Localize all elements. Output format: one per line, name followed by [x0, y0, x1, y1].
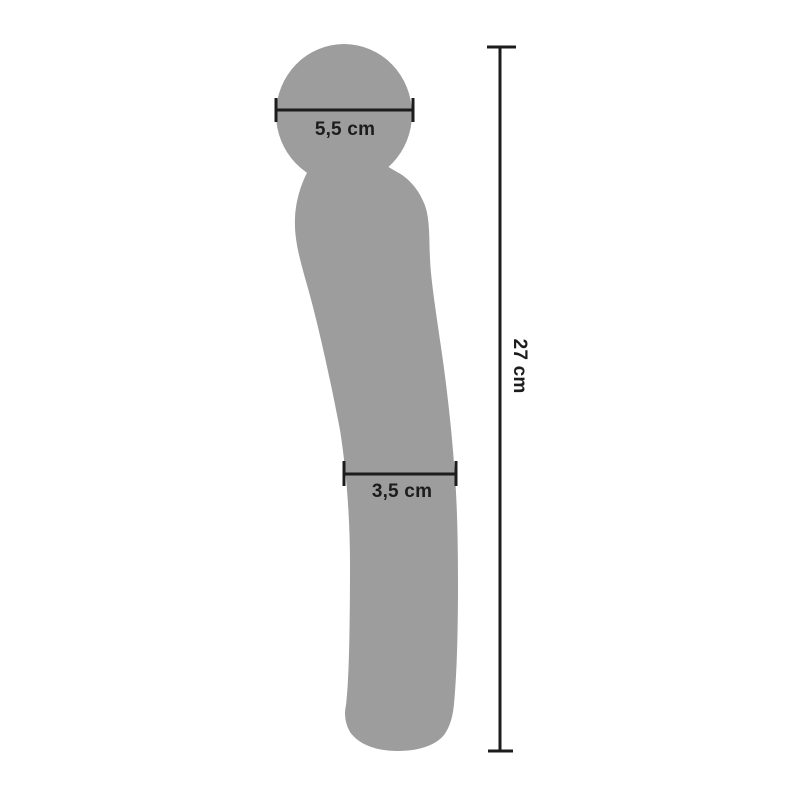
massager-body-shape: [295, 142, 458, 751]
total-length-dimension-line: [487, 47, 516, 751]
shaft-width-label: 3,5 cm: [372, 481, 432, 502]
head-width-label: 5,5 cm: [315, 119, 375, 140]
massager-silhouette: [276, 44, 458, 751]
total-length-measurement: 27 cm: [487, 47, 530, 751]
product-dimension-image: 5,5 cm 3,5 cm 27 cm: [0, 0, 800, 800]
dimension-diagram: 5,5 cm 3,5 cm 27 cm: [0, 0, 800, 800]
total-length-label: 27 cm: [509, 339, 530, 394]
